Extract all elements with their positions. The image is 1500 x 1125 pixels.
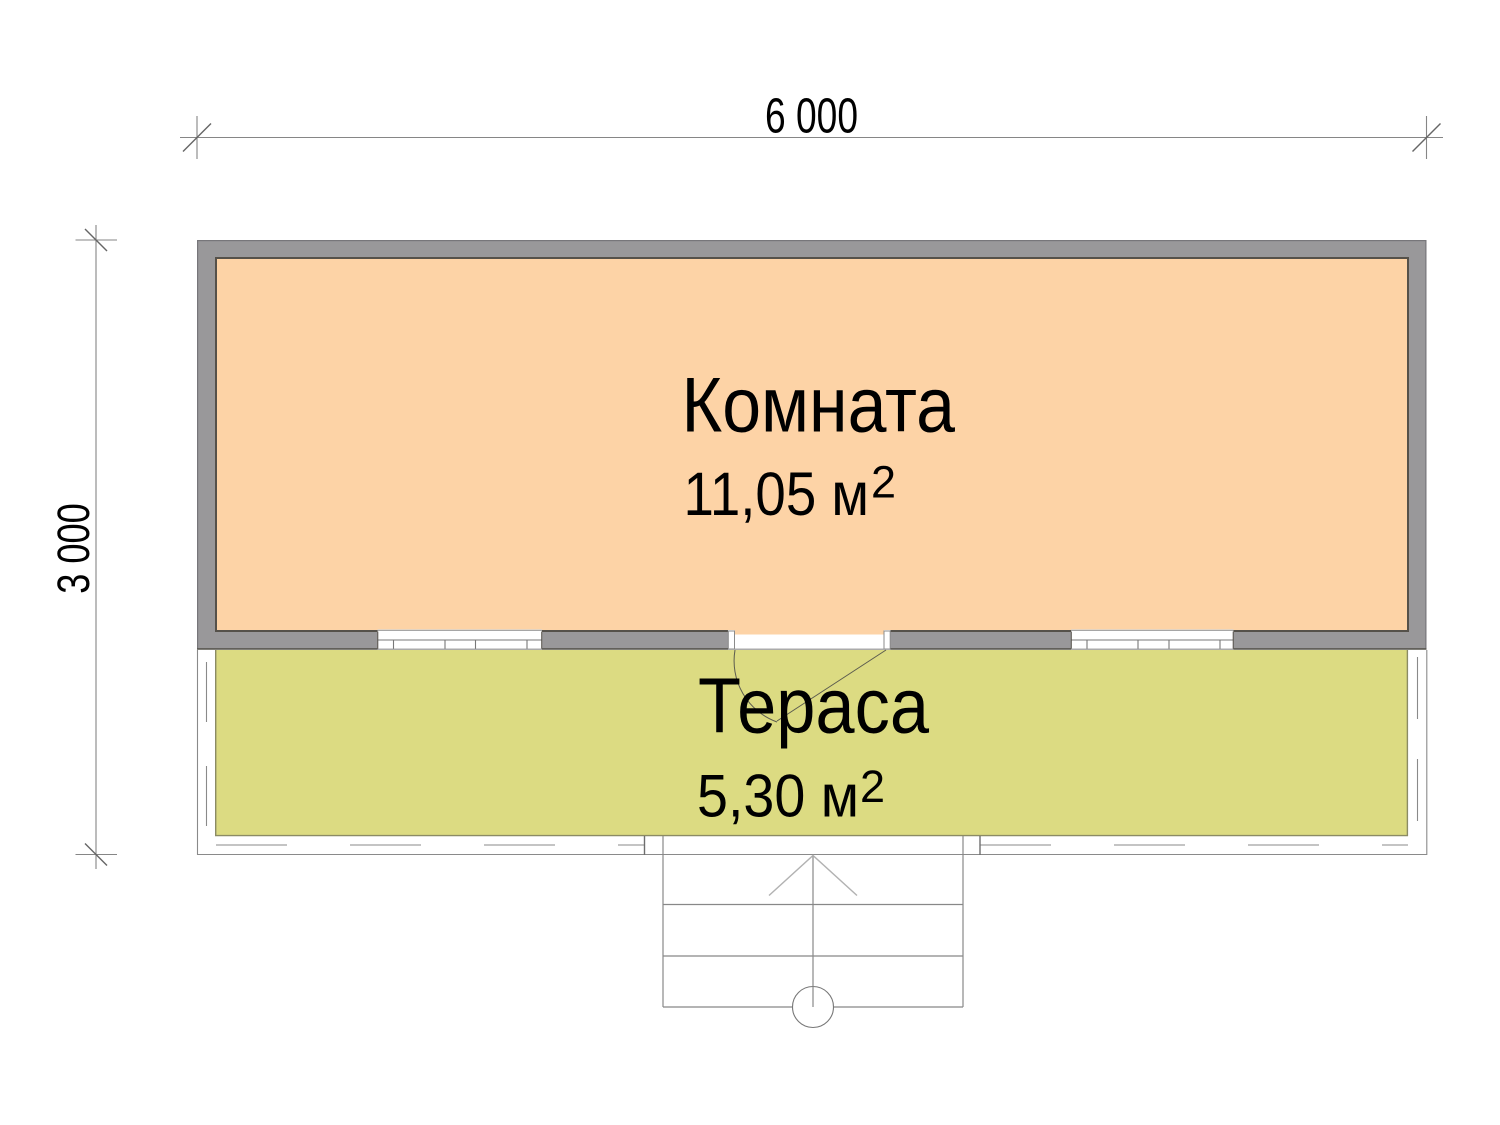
svg-text:Комната: Комната bbox=[682, 360, 956, 448]
svg-text:5,30 м: 5,30 м bbox=[697, 762, 859, 830]
svg-text:11,05 м: 11,05 м bbox=[684, 460, 870, 528]
svg-text:3 000: 3 000 bbox=[48, 503, 99, 594]
svg-text:6 000: 6 000 bbox=[765, 89, 858, 144]
svg-text:2: 2 bbox=[871, 457, 896, 508]
svg-text:Тераса: Тераса bbox=[698, 664, 930, 750]
svg-text:2: 2 bbox=[860, 761, 885, 812]
